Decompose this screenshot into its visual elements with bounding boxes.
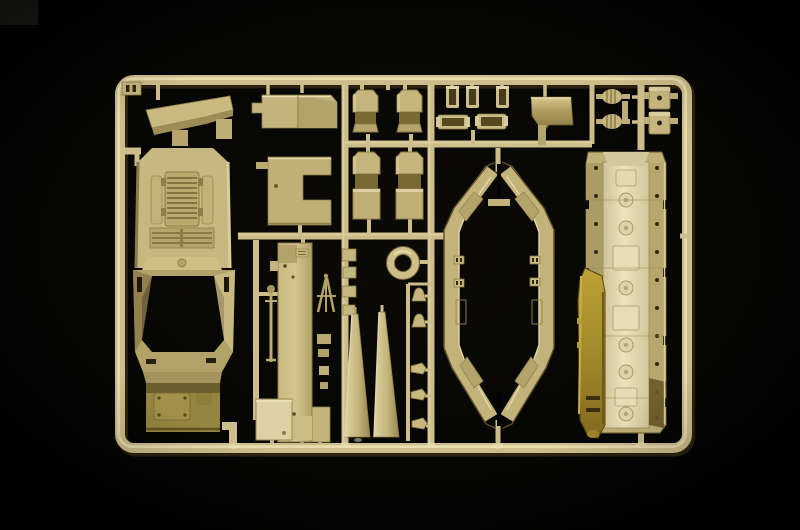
sprue-photo — [0, 0, 800, 530]
photo-stage — [0, 0, 800, 530]
vignette-overlay — [0, 0, 800, 530]
